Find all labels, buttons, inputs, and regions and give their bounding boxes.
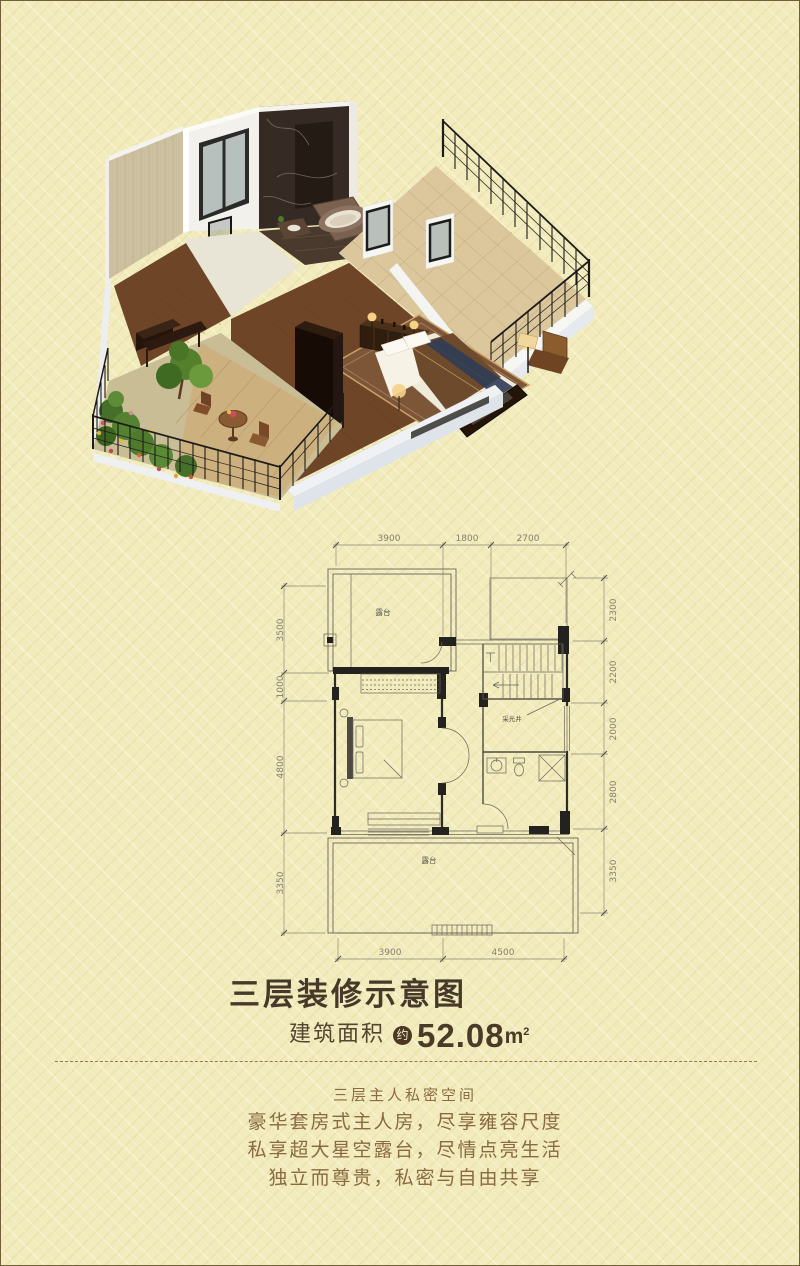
dim-label: 3350	[276, 871, 286, 894]
description-line: 独立而尊贵，私密与自由共享	[1, 1165, 800, 1193]
room-label: 采光井	[502, 714, 522, 723]
dim-label: 2700	[517, 534, 540, 544]
area-label: 建筑面积	[289, 1016, 385, 1051]
description-line: 豪华套房式主人房，尽享雍容尺度	[1, 1109, 800, 1137]
bedroom-furniture	[340, 674, 440, 825]
dimension-bottom: 3900 4500	[335, 938, 567, 962]
dim-label: 1800	[456, 534, 479, 544]
dim-label: 2800	[609, 780, 619, 803]
terrace-top-plan: 露台	[324, 569, 456, 671]
room-label: 露台	[376, 607, 391, 617]
dim-label: 2000	[609, 717, 619, 740]
staircase	[483, 644, 563, 699]
dim-label: 4800	[276, 755, 286, 778]
room-label: 露台	[422, 855, 437, 865]
dim-label: 2300	[609, 598, 619, 621]
description-block: 三层主人私密空间 豪华套房式主人房，尽享雍容尺度 私享超大星空露台，尽情点亮生活…	[1, 1083, 800, 1193]
dim-label: 1000	[276, 675, 286, 698]
approx-badge: 约	[393, 1026, 412, 1045]
dim-label: 3900	[378, 534, 401, 544]
area-unit: m2	[505, 1025, 530, 1051]
area-value: 52.08	[417, 1021, 505, 1051]
lamp-glow	[368, 313, 377, 322]
page-title: 三层装修示意图	[229, 969, 467, 1014]
description-line: 三层主人私密空间	[1, 1083, 800, 1109]
dim-label: 4500	[492, 948, 515, 958]
brochure-page: 3900 1800 2700 3500 1000 4800 3350 2300 …	[0, 0, 800, 1266]
light-well: 采光井	[502, 698, 562, 723]
description-line: 私享超大星空露台，尽情点亮生活	[1, 1137, 800, 1165]
terrace-bottom-plan: 露台	[328, 838, 578, 935]
lamp-glow	[392, 384, 406, 398]
dim-label: 3500	[276, 618, 286, 641]
dim-label: 3350	[609, 859, 619, 882]
bathroom-fixtures	[487, 755, 565, 781]
dimension-left: 3500 1000 4800 3350	[276, 583, 329, 936]
lamp-glow	[410, 321, 419, 330]
floorplan-2d: 3900 1800 2700 3500 1000 4800 3350 2300 …	[271, 521, 651, 976]
dim-label: 3900	[379, 948, 402, 958]
floorplan-3d-render	[81, 81, 771, 511]
dashed-divider	[55, 1061, 757, 1062]
area-row: 建筑面积 约 52.08 m2	[289, 1016, 529, 1051]
dim-label: 2200	[609, 660, 619, 683]
